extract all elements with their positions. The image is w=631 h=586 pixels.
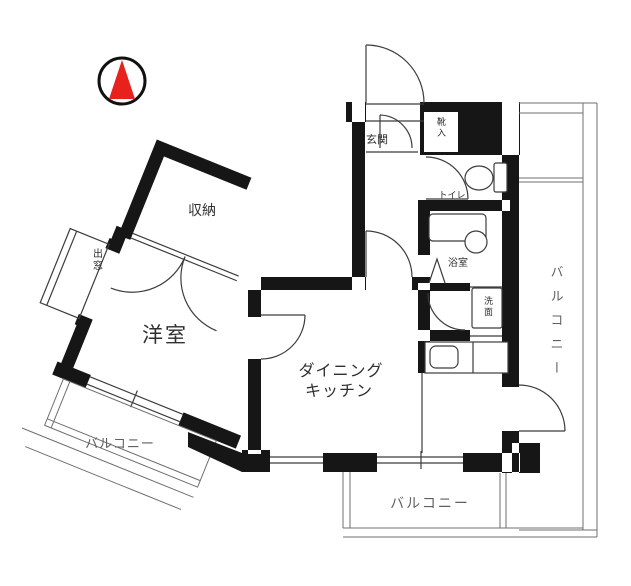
hallway-door-arc	[366, 231, 412, 277]
room-label-entrance: 玄関	[366, 132, 388, 146]
entrance-door-arc	[366, 45, 424, 103]
room-label-shoe-cabinet: 靴入	[436, 116, 446, 139]
balcony-door-arc	[519, 385, 565, 431]
room-label-toilet: トイレ	[438, 190, 465, 200]
floor-plan-page: 収納 出窓 洋室 ダイニング キッチン 玄関 靴入 トイレ 浴室 洗面 バルコニ…	[0, 0, 631, 586]
closet-door-arc-right	[164, 257, 238, 331]
rotated-wing-walls	[52, 136, 332, 448]
room-label-balcony-right: バルコニー	[549, 265, 564, 385]
toilet-bowl	[465, 166, 493, 190]
dk-door-arc	[261, 315, 305, 359]
rotated-wing	[0, 122, 332, 520]
bay-window-outline	[40, 229, 109, 319]
washroom-door-arc	[428, 293, 465, 330]
room-label-balcony-bottom: バルコニー	[390, 495, 470, 511]
dk-window-left	[270, 457, 323, 463]
room-label-bathroom: 浴室	[448, 256, 468, 269]
bay-window-inner-line	[47, 231, 77, 305]
room-label-storage: 収納	[188, 202, 216, 218]
room-label-washroom: 洗面	[483, 295, 493, 318]
west-room-window	[85, 372, 184, 426]
bath-folding-door	[429, 259, 445, 283]
room-label-balcony-left: バルコニー	[85, 436, 155, 451]
toilet-tank	[494, 163, 507, 192]
room-label-dining: ダイニング	[298, 362, 383, 380]
room-label-kitchen: キッチン	[305, 383, 373, 400]
floor-plan-canvas: 収納 出窓 洋室 ダイニング キッチン 玄関 靴入 トイレ 浴室 洗面 バルコニ…	[0, 0, 631, 586]
bath-basin	[465, 231, 487, 253]
dk-window-right	[377, 451, 463, 469]
north-compass-icon	[99, 58, 145, 104]
room-label-western-room: 洋室	[142, 324, 188, 347]
room-label-bay-window: 出窓	[91, 247, 103, 272]
rotated-wing-lines	[17, 211, 239, 426]
balcony-bottom-railing	[343, 472, 597, 537]
